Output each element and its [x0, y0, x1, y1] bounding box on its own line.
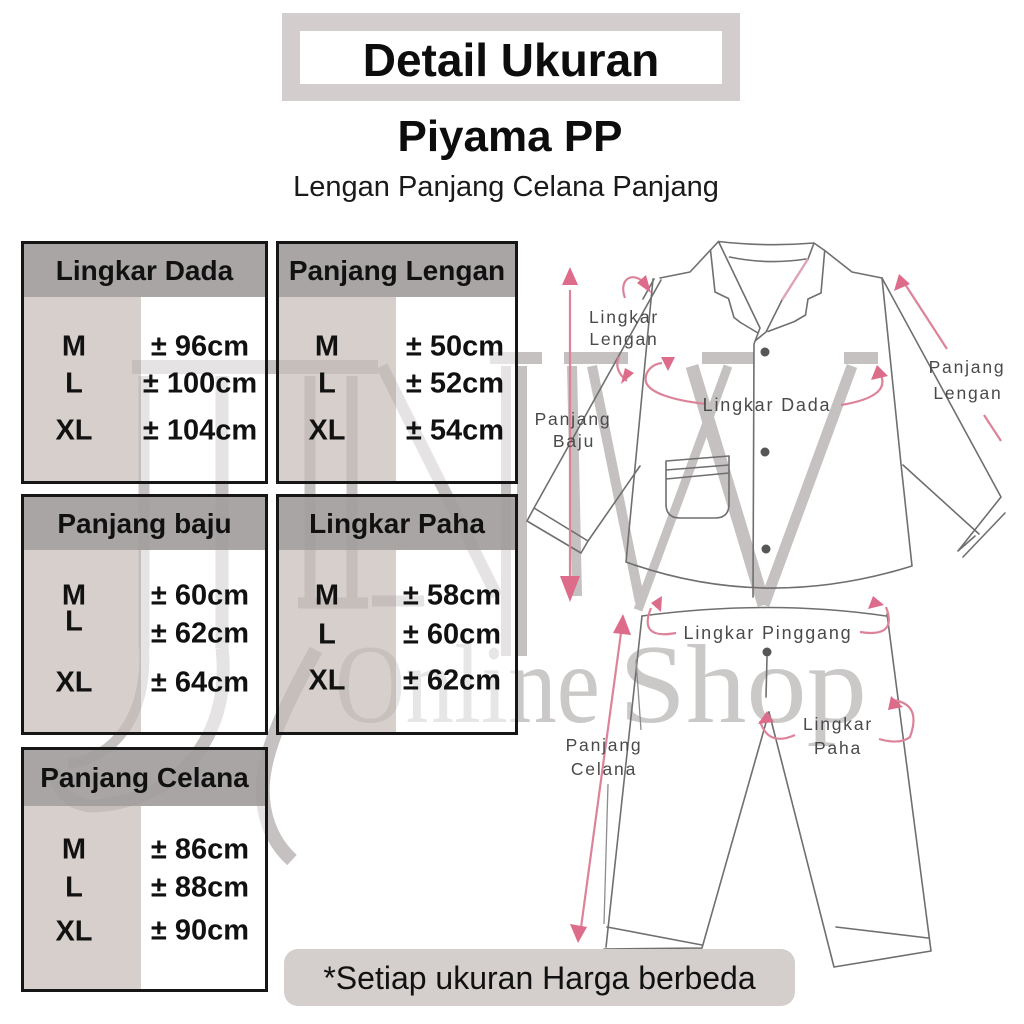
svg-text:Shop: Shop — [619, 623, 867, 747]
